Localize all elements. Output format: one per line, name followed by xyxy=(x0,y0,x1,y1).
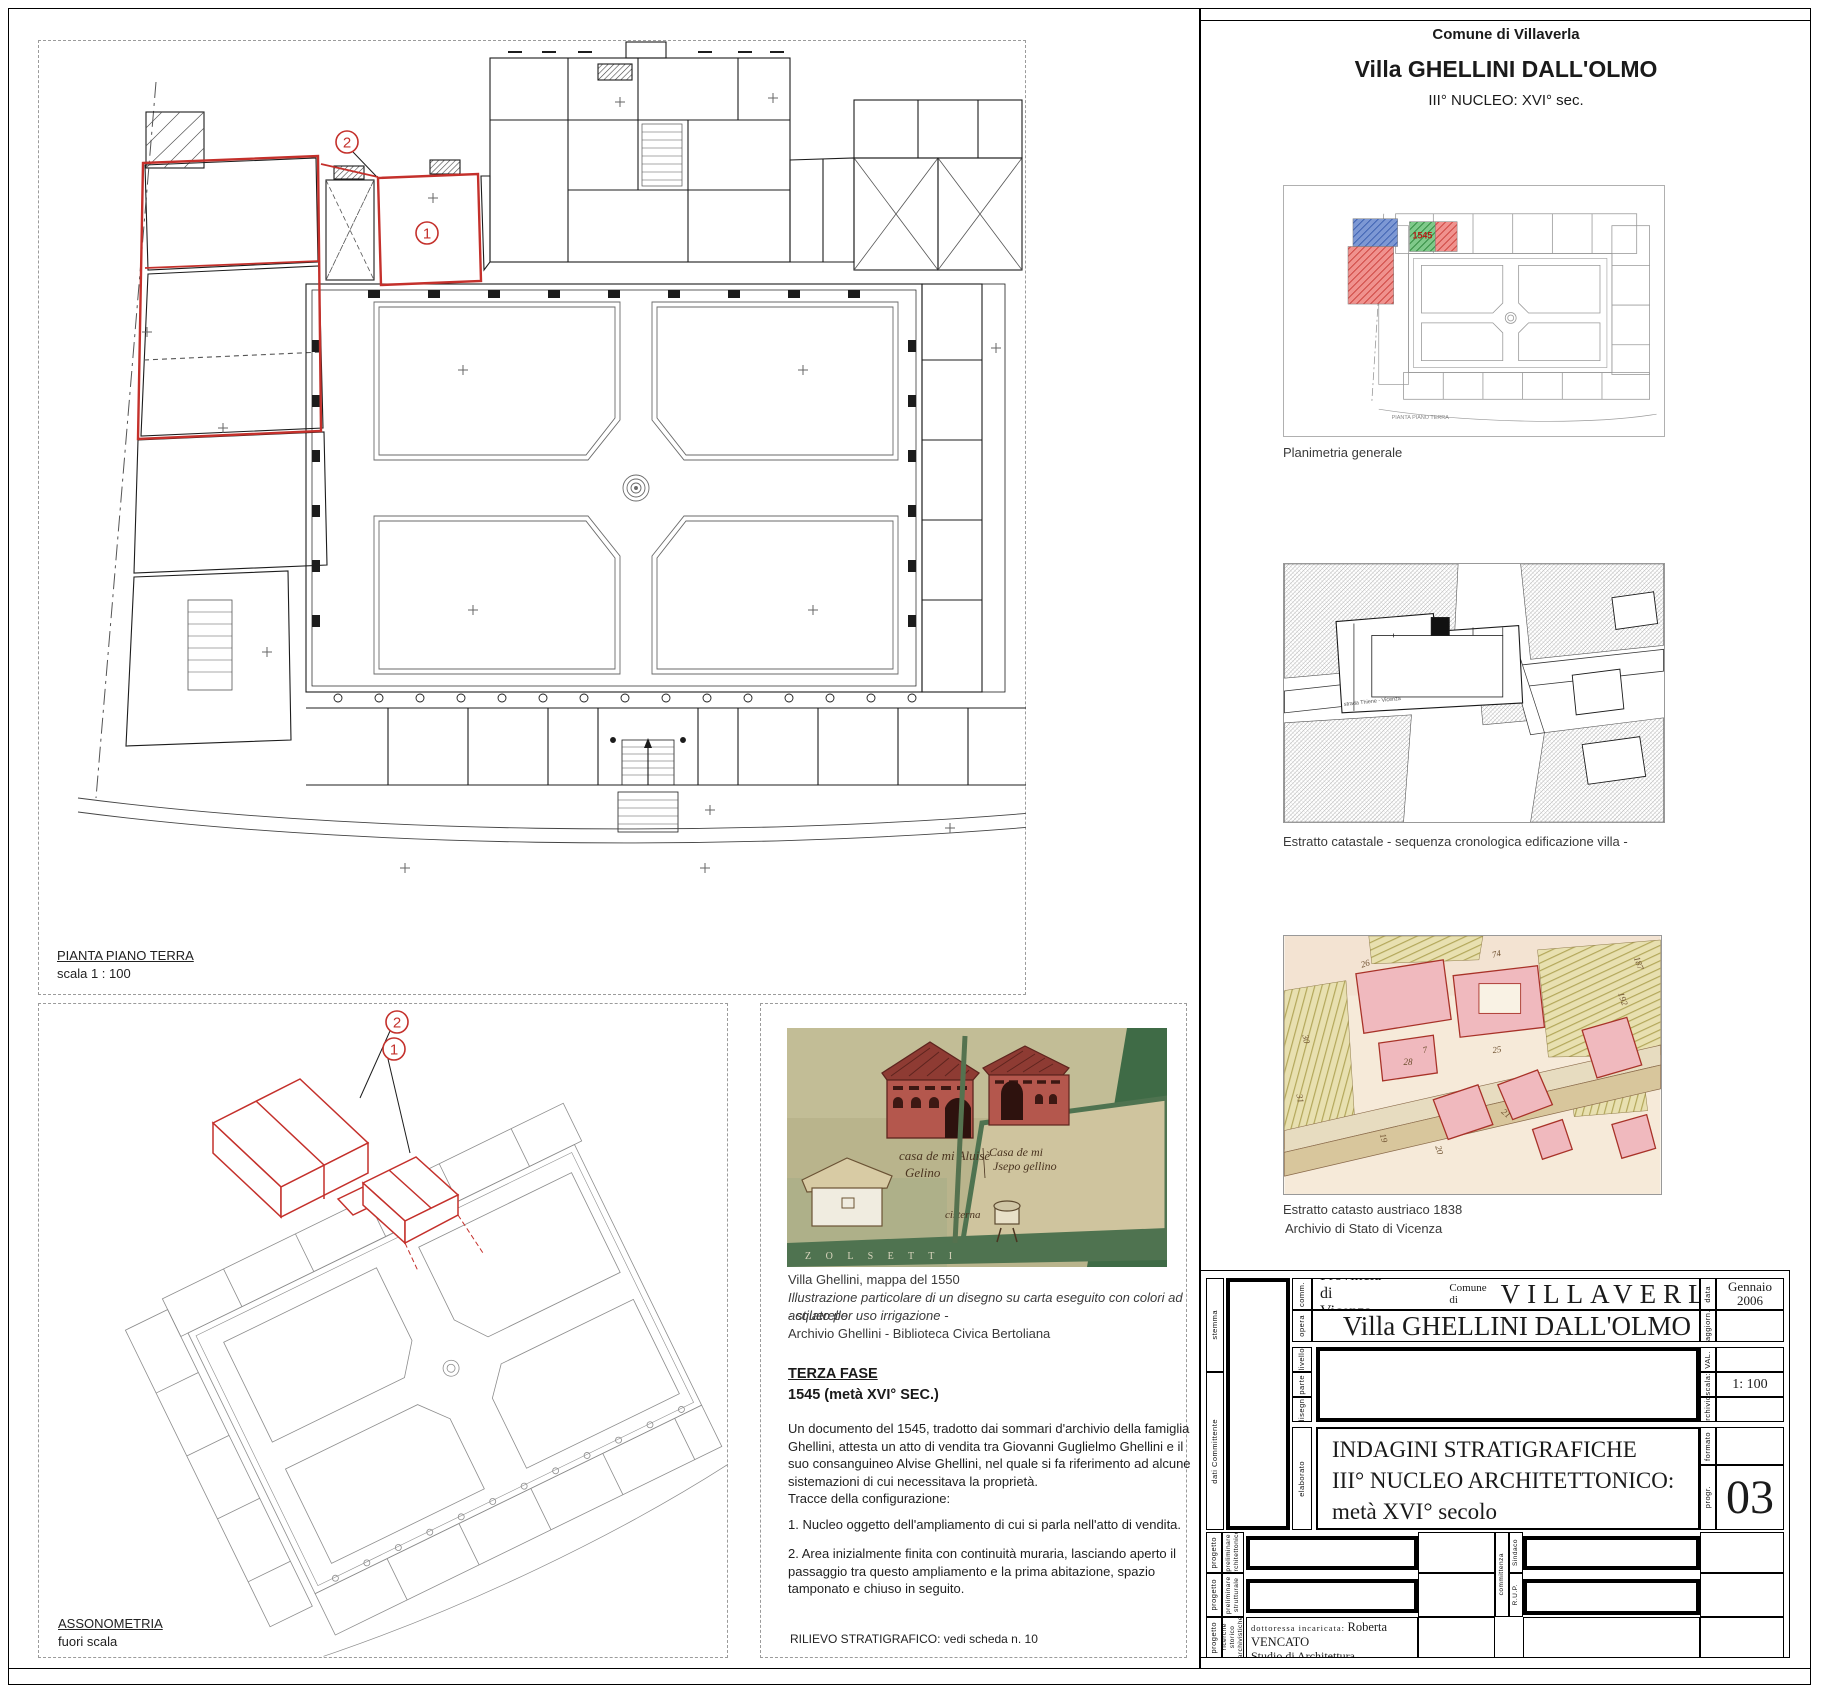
tb-signature-box-2 xyxy=(1246,1579,1418,1613)
tb-data-label: data xyxy=(1700,1278,1716,1310)
svg-text:Jsepo gellino: Jsepo gellino xyxy=(993,1159,1057,1173)
watercolor-caption-1: Villa Ghellini, mappa del 1550 xyxy=(788,1271,960,1289)
tb-comune-label: Comune di xyxy=(1449,1282,1486,1306)
catastale-caption: Estratto catastale - sequenza cronologic… xyxy=(1283,833,1628,851)
tb-progr-label: progr. xyxy=(1700,1465,1716,1530)
tb-elaborato-box: INDAGINI STRATIGRAFICHE III° NUCLEO ARCH… xyxy=(1316,1427,1700,1530)
tb-comm-label: comm. xyxy=(1292,1278,1312,1310)
catastale-villa xyxy=(1336,614,1523,713)
terza-fase-item2: 2. Area inizialmente finita con continui… xyxy=(788,1545,1192,1598)
watercolor-band-letters: Z O L S E T T I xyxy=(805,1251,958,1262)
tb-mid-cell-3 xyxy=(1418,1617,1495,1658)
planimetria-generale: 1545 PIANTA PIANO TERRA xyxy=(1283,185,1665,437)
svg-text:2: 2 xyxy=(393,1015,401,1032)
tb-dati-committente-label: dati Committente xyxy=(1206,1372,1224,1530)
colonnade xyxy=(334,694,916,743)
tb-committenza-label: committenza xyxy=(1495,1532,1509,1617)
austriaco-caption-2: Archivio di Stato di Vicenza xyxy=(1285,1220,1442,1238)
tb-studio-title: Studio di Architettura xyxy=(1251,1650,1413,1658)
main-plan-title: PIANTA PIANO TERRA xyxy=(57,948,194,963)
tb-right-cell-1 xyxy=(1700,1532,1784,1573)
axonometry-scale: fuori scala xyxy=(58,1634,117,1649)
tb-row-opera: Villa GHELLINI DALL'OLMO xyxy=(1312,1310,1700,1342)
tb-studio-block: dottoressa incaricata: Roberta VENCATO S… xyxy=(1246,1617,1418,1658)
planimetria-caption: Planimetria generale xyxy=(1283,444,1402,462)
tb-sindaco-label: Sindaco xyxy=(1509,1532,1523,1573)
svg-text:1: 1 xyxy=(423,226,431,243)
main-plan-scale: scala 1 : 100 xyxy=(57,966,131,981)
tb-progr-value: 03 xyxy=(1716,1465,1784,1530)
svg-text:2: 2 xyxy=(343,135,351,152)
tb-prel-strutt-label: preliminare strutturale xyxy=(1222,1573,1244,1617)
terza-fase-subtitle: 1545 (metà XVI° SEC.) xyxy=(788,1387,939,1403)
tb-archivio-value xyxy=(1716,1397,1784,1422)
terza-fase-title: TERZA FASE xyxy=(788,1366,878,1382)
catasto-austriaco: 26 7 28 25 74 187 192 19 20 21 31 30 xyxy=(1283,935,1662,1195)
tb-stemma-box xyxy=(1226,1278,1290,1530)
watercolor-1550: casa de mi Aluisè Gelino Casa de mi Jsep… xyxy=(787,1028,1167,1267)
watercolor-caption-3: - stilato per uso irrigazione - xyxy=(788,1307,948,1325)
plan-walls xyxy=(78,42,1026,843)
tb-aggiorn-label: aggiorn. xyxy=(1700,1310,1716,1342)
tb-right-cell-3 xyxy=(1700,1617,1784,1658)
svg-text:1: 1 xyxy=(390,1042,398,1059)
header-subtitle: III° NUCLEO: XVI° sec. xyxy=(1199,92,1813,109)
courtyard-parcels xyxy=(374,302,898,674)
marker-1: 1 xyxy=(416,222,438,244)
mini-plan-label: PIANTA PIANO TERRA xyxy=(1392,415,1450,421)
tb-elaborato-line3: metà XVI° secolo xyxy=(1332,1496,1674,1527)
mini-plan-highlights xyxy=(1348,219,1457,304)
svg-text:31: 31 xyxy=(1294,1092,1306,1104)
tb-scala-value: 1: 100 xyxy=(1716,1372,1784,1397)
tb-opera-value: Villa GHELLINI DALL'OLMO xyxy=(1343,1311,1699,1342)
tb-val-value xyxy=(1716,1347,1784,1372)
tb-scala-label: scala: xyxy=(1700,1372,1716,1397)
tb-mid-cell-2 xyxy=(1418,1573,1495,1617)
austriaco-caption-1: Estratto catasto austriaco 1838 xyxy=(1283,1201,1462,1219)
tb-prog3-label: progetto xyxy=(1206,1617,1222,1658)
tb-drawing-box xyxy=(1316,1347,1700,1422)
main-floor-plan: 2 1 xyxy=(38,40,1026,995)
terza-fase-paragraph: Un documento del 1545, tradotto dai somm… xyxy=(788,1420,1192,1490)
survey-crosses xyxy=(142,93,1001,873)
tb-formato-value xyxy=(1716,1427,1784,1465)
tb-archivio-label: archivio: xyxy=(1700,1397,1716,1422)
tb-opera-label: opera xyxy=(1292,1310,1312,1342)
tb-studio-role: dottoressa incaricata: xyxy=(1251,1623,1345,1633)
svg-text:cisterna: cisterna xyxy=(945,1209,981,1221)
svg-text:Gelino: Gelino xyxy=(905,1165,941,1180)
watercolor-caption-4: Archivio Ghellini - Biblioteca Civica Be… xyxy=(788,1325,1050,1343)
tb-elaborato-line1: INDAGINI STRATIGRAFICHE xyxy=(1332,1434,1674,1465)
tb-prog2-label: progetto xyxy=(1206,1573,1222,1617)
tb-prel-arch-label: preliminare architettonico xyxy=(1222,1532,1244,1573)
tb-signature-box-1 xyxy=(1246,1536,1418,1570)
tb-val-label: VAL. xyxy=(1700,1347,1716,1372)
tb-mid-cell-1 xyxy=(1418,1532,1495,1573)
header-comune: Comune di Villaverla xyxy=(1199,26,1813,43)
tb-signature-box-4 xyxy=(1523,1579,1700,1615)
tb-disegn-label: disegn. xyxy=(1292,1397,1312,1422)
axono-red-volumes xyxy=(213,1079,483,1271)
tb-row-provincia: Provincia di Vicenza Comune di VILLAVERL… xyxy=(1312,1278,1700,1310)
svg-text:28: 28 xyxy=(1404,1057,1413,1067)
svg-text:casa de mi Aluisè: casa de mi Aluisè xyxy=(899,1148,990,1163)
svg-text:Casa de mi: Casa de mi xyxy=(989,1145,1043,1159)
axonometry-title: ASSONOMETRIA xyxy=(58,1616,163,1631)
tb-prog1-label: progetto xyxy=(1206,1532,1222,1573)
tb-right-cell-2 xyxy=(1700,1573,1784,1617)
tb-parte-label: parte xyxy=(1292,1372,1312,1397)
terza-fase-footer: RILIEVO STRATIGRAFICO: vedi scheda n. 10 xyxy=(790,1632,1038,1646)
mini-plan-year-label: 1545 xyxy=(1412,231,1432,241)
drawing-sheet: 2 1 PIANTA PIANO TERRA scala 1 : 100 xyxy=(0,0,1821,1693)
tb-stemma-label: stemma xyxy=(1206,1278,1224,1372)
terza-fase-item1: 1. Nucleo oggetto dell'ampliamento di cu… xyxy=(788,1516,1192,1534)
terza-fase-tracce: Tracce della configurazione: xyxy=(788,1490,950,1508)
divider-bottom xyxy=(8,1668,1811,1669)
tb-provincia: Provincia di Vicenza xyxy=(1313,1278,1381,1310)
tb-elaborato-line2: III° NUCLEO ARCHITETTONICO: xyxy=(1332,1465,1674,1496)
page-title: Villa GHELLINI DALL'OLMO xyxy=(1199,56,1813,83)
tb-livello-label: livello xyxy=(1292,1347,1312,1372)
tb-formato-label: formato xyxy=(1700,1427,1716,1465)
tb-comune-value: VILLAVERLA xyxy=(1501,1279,1700,1310)
divider-top-right xyxy=(1199,20,1811,21)
axono-marker-1: 1 xyxy=(383,1038,410,1153)
axonometry-drawing: 2 1 xyxy=(38,1003,728,1658)
tb-rup-label: R.U.P. xyxy=(1509,1573,1523,1617)
tb-aggiorn-value xyxy=(1716,1310,1784,1342)
tb-ric-stor-label: ricerche storico archivistiche xyxy=(1222,1617,1244,1658)
tb-data-value: Gennaio2006 xyxy=(1716,1278,1784,1310)
estratto-catastale: strada Thiene - Vicenza xyxy=(1283,563,1665,823)
tb-elaborato-label: elaborato xyxy=(1292,1427,1312,1530)
tb-signature-box-3 xyxy=(1523,1536,1700,1570)
tb-bottom-right-cell xyxy=(1523,1617,1700,1658)
